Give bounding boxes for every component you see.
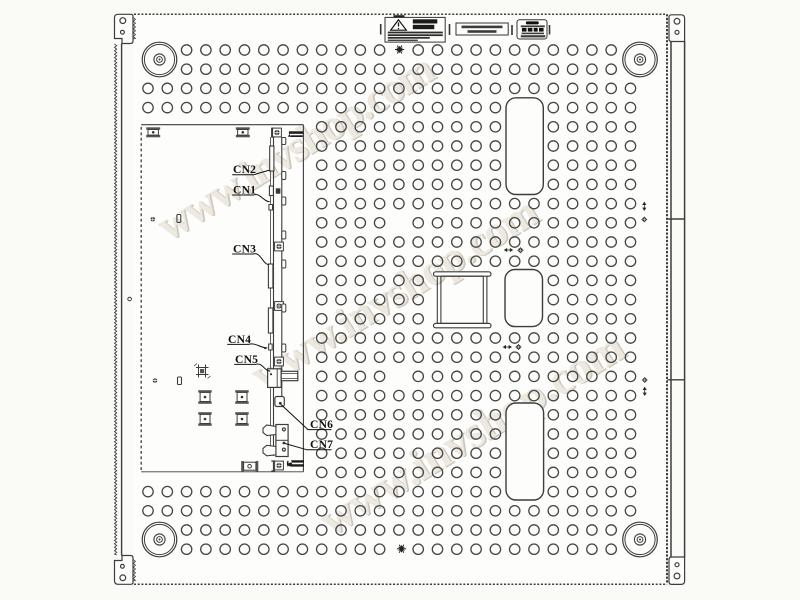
svg-text:CN4: CN4 xyxy=(228,333,251,346)
svg-text:CN5: CN5 xyxy=(235,353,258,366)
svg-text:CN6: CN6 xyxy=(310,418,333,431)
svg-text:CN7: CN7 xyxy=(310,438,333,451)
svg-text:CN2: CN2 xyxy=(233,163,256,176)
svg-text:CN3: CN3 xyxy=(233,242,256,255)
svg-text:CN1: CN1 xyxy=(233,183,256,196)
